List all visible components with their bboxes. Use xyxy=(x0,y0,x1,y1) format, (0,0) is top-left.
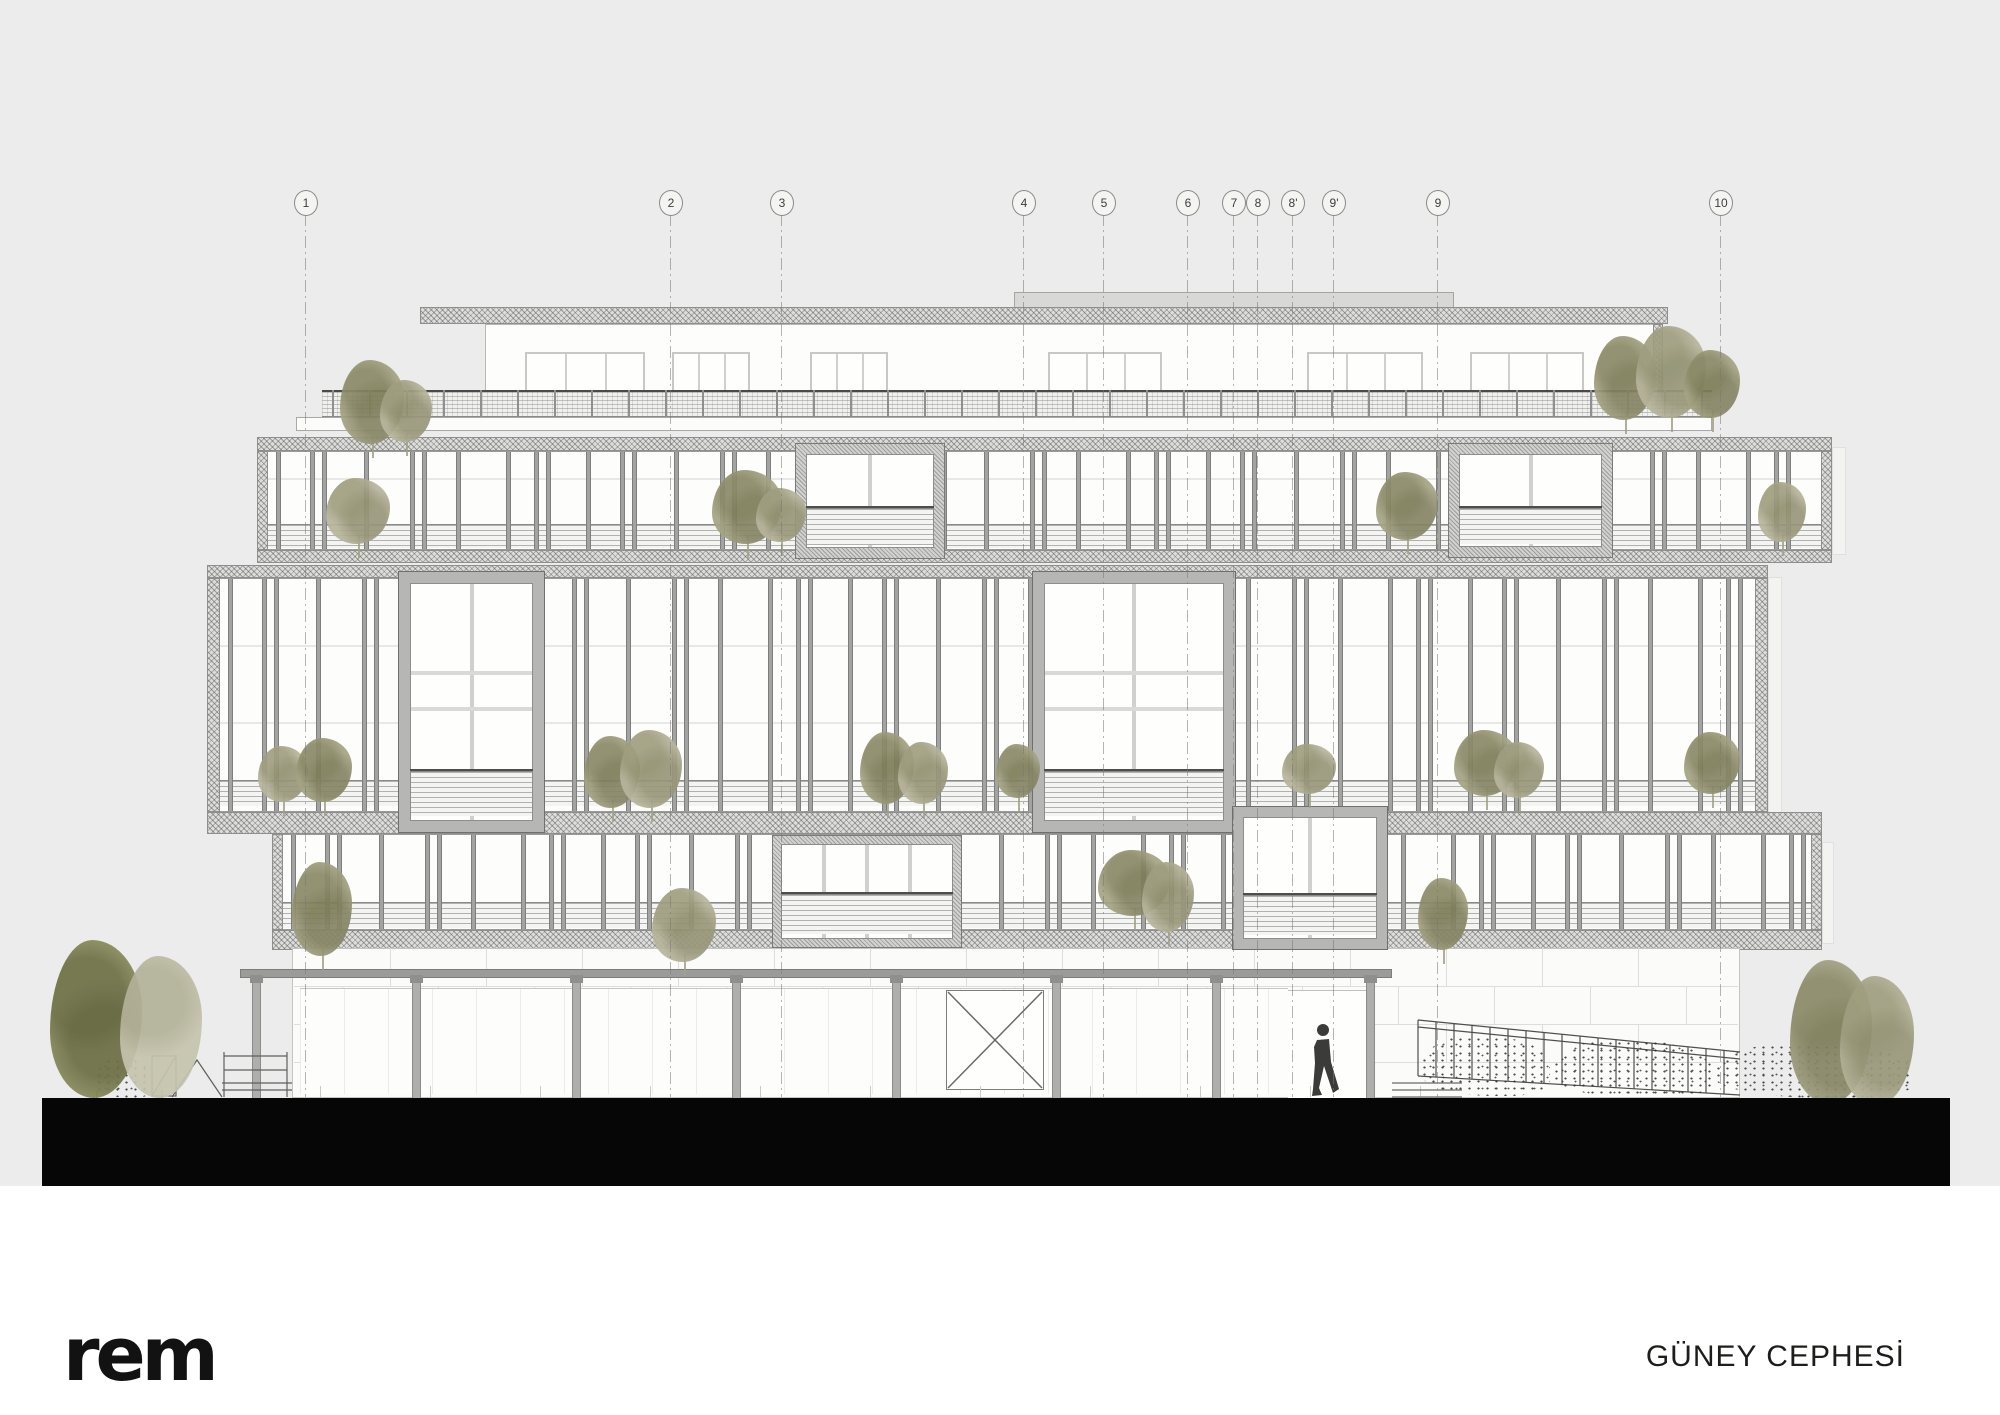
grid-bubble-9': 9' xyxy=(1322,190,1346,216)
grid-bubble-5: 5 xyxy=(1092,190,1116,216)
grid-bubble-6: 6 xyxy=(1176,190,1200,216)
grid-line-2 xyxy=(670,214,671,1097)
grid-line-8 xyxy=(1257,214,1258,1097)
hedge xyxy=(1552,1040,1712,1098)
grid-line-10 xyxy=(1720,214,1721,1097)
grid-bubble-3: 3 xyxy=(770,190,794,216)
grid-line-9 xyxy=(1437,214,1438,1097)
grid-bubble-7: 7 xyxy=(1222,190,1246,216)
grid-bubble-4: 4 xyxy=(1012,190,1036,216)
grid-line-1 xyxy=(305,214,306,1097)
drawing-title: GÜNEY CEPHESİ xyxy=(1646,1340,1905,1374)
grid-line-9' xyxy=(1333,214,1334,1097)
grid-bubble-10: 10 xyxy=(1709,190,1733,216)
grid-bubble-8: 8 xyxy=(1246,190,1270,216)
grid-line-3 xyxy=(781,214,782,1097)
hedge xyxy=(1420,1036,1550,1096)
grid-bubble-1: 1 xyxy=(294,190,318,216)
person-figure xyxy=(1312,1024,1339,1096)
grid-bubble-2: 2 xyxy=(659,190,683,216)
grid-line-4 xyxy=(1023,214,1024,1097)
grid-bubble-9: 9 xyxy=(1426,190,1450,216)
grid-line-8' xyxy=(1292,214,1293,1097)
elevation-sheet: 123456788'9'910 xyxy=(0,0,2000,1415)
grid-line-5 xyxy=(1103,214,1104,1097)
left-stair xyxy=(222,1052,292,1097)
grid-line-7 xyxy=(1233,214,1234,1097)
grid-line-6 xyxy=(1187,214,1188,1097)
firm-logo: rem xyxy=(63,1312,215,1398)
grid-bubble-8': 8' xyxy=(1281,190,1305,216)
x-brace xyxy=(948,992,1042,1088)
ground-bar xyxy=(42,1098,1950,1186)
